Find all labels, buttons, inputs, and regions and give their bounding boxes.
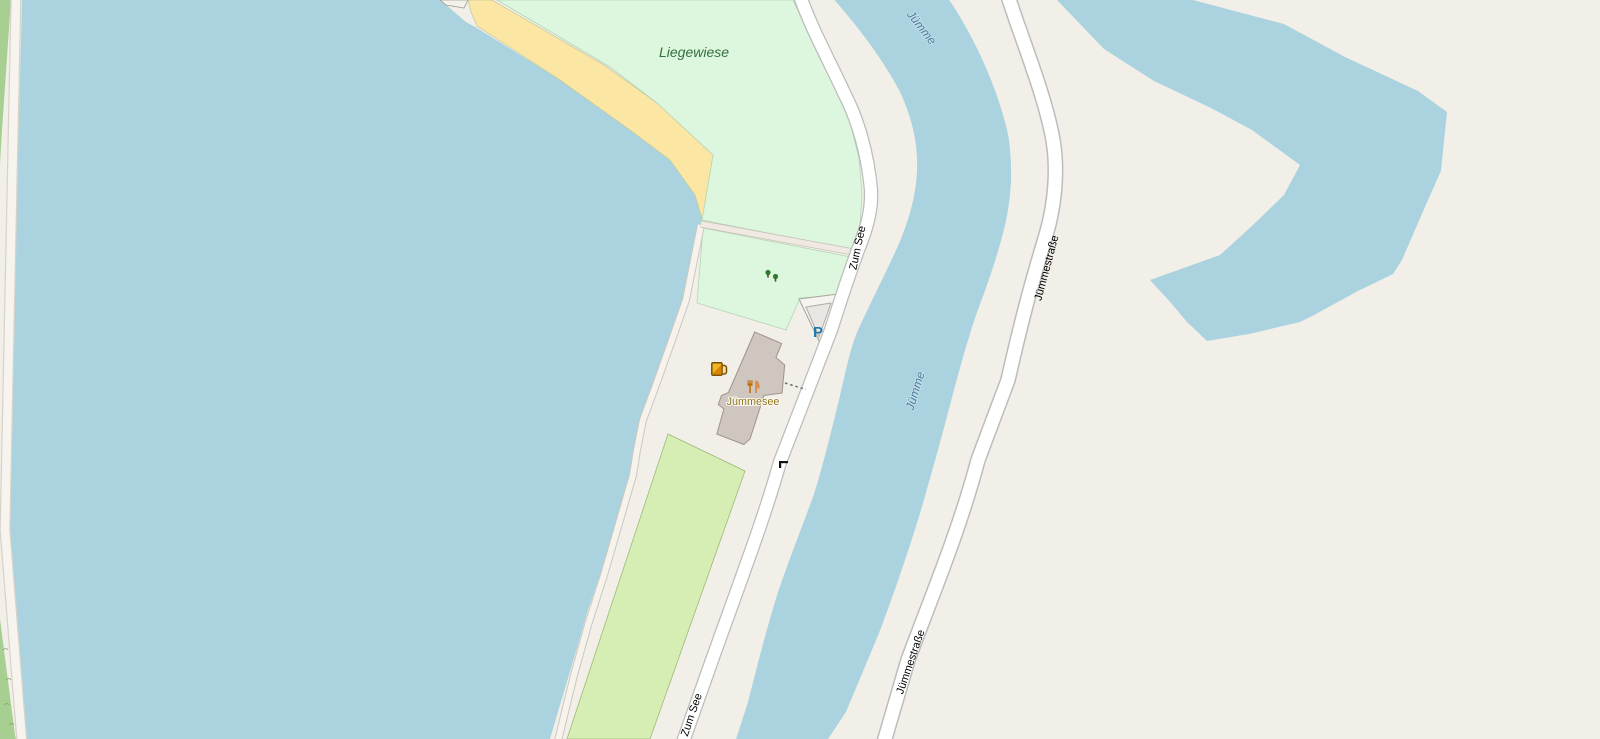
svg-text:Liegewiese: Liegewiese <box>659 44 729 60</box>
svg-text:Jümmesee: Jümmesee <box>727 396 780 408</box>
svg-text:P: P <box>813 324 823 341</box>
